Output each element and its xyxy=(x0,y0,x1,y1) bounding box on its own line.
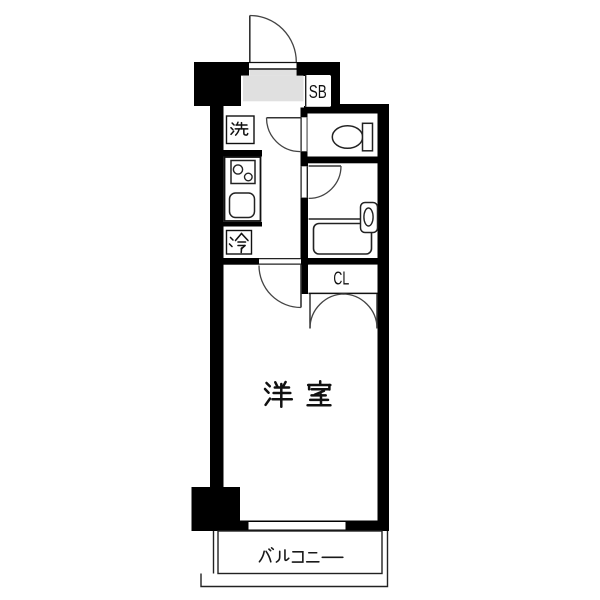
svg-text:CL: CL xyxy=(333,268,349,288)
svg-text:SB: SB xyxy=(309,81,327,102)
